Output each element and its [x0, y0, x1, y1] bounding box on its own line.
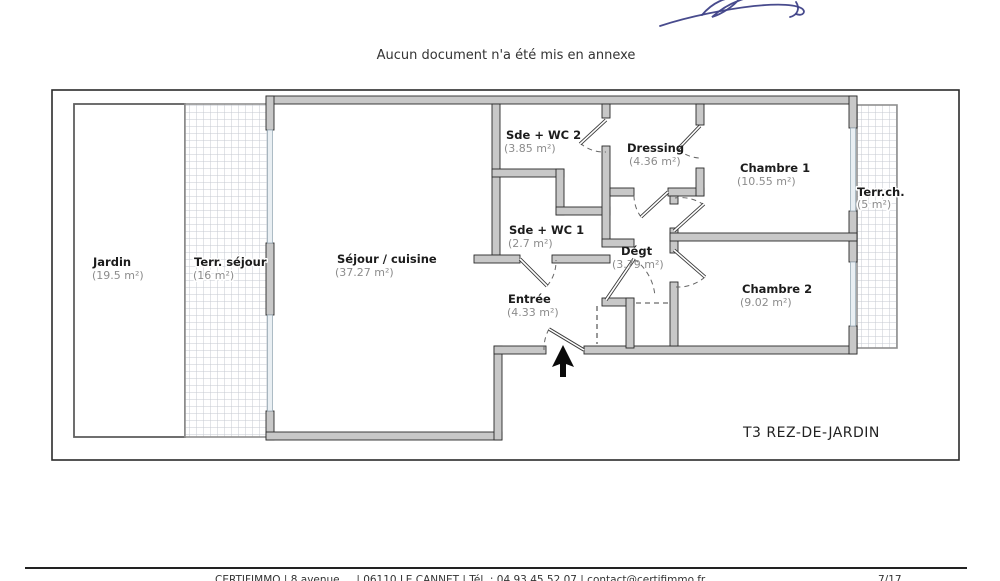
room-area-degt: (3.79 m²)	[612, 258, 664, 271]
room-area-dressing: (4.36 m²)	[629, 155, 681, 168]
footer-info: CERTIFIMMO | 8 avenue ... | 06110 LE CAN…	[215, 574, 706, 581]
window-chambre2	[851, 262, 856, 326]
room-area-terr-ch: (5 m²)	[857, 198, 891, 211]
room-area-chambre-2: (9.02 m²)	[740, 296, 792, 309]
door-chambre-1	[674, 198, 704, 231]
door-chambre-2	[674, 250, 705, 287]
footer-page-number: 7/17	[878, 574, 902, 581]
room-area-chambre-1: (10.55 m²)	[737, 175, 796, 188]
door-dressing	[634, 192, 668, 217]
annex-note: Aucun document n'a été mis en annexe	[377, 48, 636, 63]
window-chambre1	[851, 128, 856, 211]
room-label-entree: Entrée	[508, 292, 551, 306]
terrace-chambre-area	[857, 105, 897, 348]
room-label-sde-wc-1: Sde + WC 1	[509, 223, 584, 237]
room-label-chambre-1: Chambre 1	[740, 161, 810, 175]
room-label-sde-wc-2: Sde + WC 2	[506, 128, 581, 142]
door-entrance	[544, 329, 584, 350]
floor-plan-canvas: Aucun document n'a été mis en annexe	[0, 0, 1000, 581]
room-area-entree: (4.33 m²)	[507, 306, 559, 319]
window-sejour-upper	[268, 130, 273, 243]
signature	[660, 0, 804, 26]
window-sejour-lower	[268, 315, 273, 411]
entrance-arrow	[552, 345, 574, 377]
room-label-dressing: Dressing	[627, 141, 684, 155]
door-sde-wc-1	[520, 259, 556, 286]
plan-type-label: T3 REZ-DE-JARDIN	[742, 425, 880, 441]
room-label-sejour: Séjour / cuisine	[337, 252, 437, 266]
footer-divider	[25, 567, 967, 569]
document-page: Aucun document n'a été mis en annexe	[0, 0, 1000, 581]
room-label-jardin: Jardin	[92, 255, 131, 269]
room-label-chambre-2: Chambre 2	[742, 282, 812, 296]
room-area-sde-wc-2: (3.85 m²)	[504, 142, 556, 155]
room-label-terr-sejour: Terr. séjour	[194, 255, 267, 269]
room-area-jardin: (19.5 m²)	[92, 269, 144, 282]
room-area-terr-sejour: (16 m²)	[193, 269, 234, 282]
room-area-sde-wc-1: (2.7 m²)	[508, 237, 553, 250]
room-label-degt: Dégt	[621, 244, 653, 258]
room-label-terr-ch: Terr.ch.	[857, 185, 905, 199]
room-area-sejour: (37.27 m²)	[335, 266, 394, 279]
